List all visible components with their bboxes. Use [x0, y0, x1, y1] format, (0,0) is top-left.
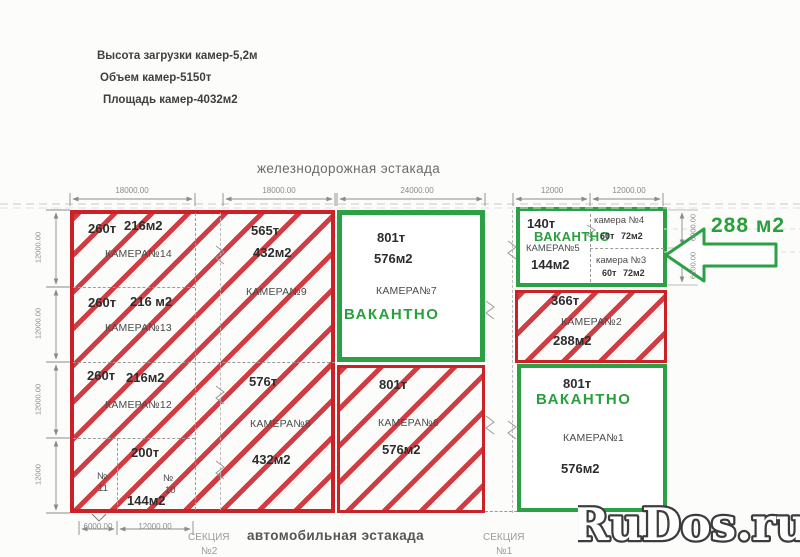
dim-left-1: 12000.00 — [34, 218, 43, 278]
chamber-13-tonnage: 260т — [88, 295, 116, 310]
chamber-11-number: 11 — [98, 483, 108, 494]
chamber-10-number: 10 — [165, 485, 176, 496]
chamber-13-area: 216 м2 — [130, 294, 172, 309]
watermark-text: RuDos.ru — [578, 498, 800, 551]
chamber-14-tonnage: 260т — [88, 221, 116, 236]
chamber-2-area: 288м2 — [553, 333, 592, 348]
chamber-1-name: КАМЕРА№1 — [563, 432, 624, 444]
section-2-number: №2 — [201, 546, 217, 557]
section-2-label: СЕКЦИЯ — [188, 532, 230, 543]
chamber-10-tonnage: 200т — [131, 445, 159, 460]
watermark: RuDos.ru — [578, 486, 800, 557]
warehouse-plan: Высота загрузки камер-5,2м Объем камер-5… — [0, 0, 800, 557]
chamber-9-name: КАМЕРА№9 — [246, 286, 307, 298]
chamber-6-tonnage: 801т — [379, 377, 407, 392]
chamber-3-tonnage: 60т — [602, 268, 616, 278]
dim-top-2: 18000.00 — [249, 186, 309, 195]
drawing-overlay — [0, 0, 800, 557]
chamber-7-area: 576м2 — [374, 251, 413, 266]
dim-left-3: 12000.00 — [34, 370, 43, 430]
chamber-6-name: КАМЕРА№6 — [378, 417, 439, 429]
dim-top-1: 18000.00 — [102, 186, 162, 195]
dim-left-4: 12000 — [34, 445, 43, 505]
chamber-1-vacant-badge: ВАКАНТНО — [536, 391, 631, 408]
chamber-4-tonnage: 60т — [600, 231, 614, 241]
chamber-3-area: 72м2 — [623, 268, 645, 278]
dim-bottom-2: 12000.00 — [125, 522, 185, 531]
chamber-3-name: камера №3 — [596, 255, 646, 266]
dim-bottom-1: 6000.00 — [73, 522, 123, 531]
chamber-4-name: камера №4 — [594, 215, 644, 226]
chamber-13-name: КАМЕРА№13 — [105, 322, 172, 334]
section-1-number: №1 — [496, 546, 512, 557]
chamber-12-tonnage: 260т — [87, 368, 115, 383]
chamber-5-vacant-badge: ВАКАНТНО — [534, 229, 610, 244]
chamber-11-no-sign: № — [97, 471, 107, 482]
chamber-1-tonnage: 801т — [563, 376, 591, 391]
chamber-12-name: КАМЕРА№12 — [105, 399, 172, 411]
dim-right-2: 6100.00 — [689, 236, 698, 296]
chamber-5-name: КАМЕРА№5 — [526, 243, 580, 254]
chamber-7-vacant-badge: ВАКАНТНО — [344, 306, 439, 323]
chamber-10-no-sign: № — [163, 473, 173, 484]
chamber-9-area: 432м2 — [253, 245, 292, 260]
chamber-2-name: КАМЕРА№2 — [561, 316, 622, 328]
chamber-5-area: 144м2 — [531, 257, 570, 272]
section-1-label: СЕКЦИЯ — [483, 532, 525, 543]
highlight-area-label: 288 м2 — [711, 214, 785, 238]
chamber-9-tonnage: 565т — [251, 223, 279, 238]
chamber-4-area: 72м2 — [621, 231, 643, 241]
left-dimension-lines — [46, 210, 70, 513]
dim-top-3: 24000.00 — [387, 186, 447, 195]
chamber-2-tonnage: 366т — [551, 293, 579, 308]
chamber-7-name: КАМЕРА№7 — [376, 285, 437, 297]
chamber-14-name: КАМЕРА№14 — [105, 248, 172, 260]
chamber-8-tonnage: 576т — [249, 374, 277, 389]
chamber-12-area: 216м2 — [126, 370, 165, 385]
chamber-8-area: 432м2 — [252, 452, 291, 467]
chamber-8-name: КАМЕРА№8 — [250, 418, 311, 430]
chamber-14-area: 216м2 — [124, 218, 163, 233]
chamber-10-area: 144м2 — [127, 493, 166, 508]
dim-top-4: 12000 — [522, 186, 582, 195]
chamber-6-area: 576м2 — [382, 442, 421, 457]
dim-left-2: 12000.00 — [34, 294, 43, 354]
dim-top-5: 12000.00 — [599, 186, 659, 195]
chamber-7-tonnage: 801т — [377, 230, 405, 245]
chamber-1-area: 576м2 — [561, 461, 600, 476]
